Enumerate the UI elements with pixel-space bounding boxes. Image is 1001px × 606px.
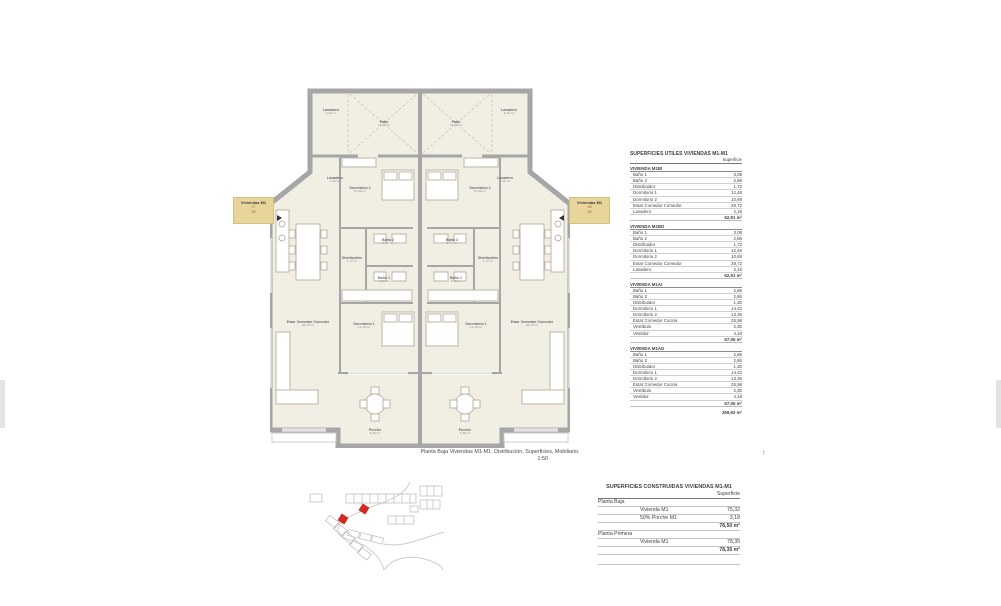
- row-label: Dormitorio 2: [633, 376, 657, 381]
- table-row: Vivienda M175,32: [598, 507, 740, 515]
- row-value: 14,22: [731, 306, 742, 311]
- row-label: Baño 2: [633, 294, 647, 299]
- row-value: 2,86: [733, 294, 742, 299]
- row-value: 2,30: [733, 324, 742, 329]
- row-label: Estar Comedor Cocina: [633, 382, 677, 387]
- row-label: Distribuidor: [633, 300, 655, 305]
- block-total-row: 62,91 m²: [630, 273, 742, 279]
- row-label: Baño 1: [633, 288, 647, 293]
- row-label: Distribuidor: [633, 242, 655, 247]
- table-row: 50% Porche M13,18: [598, 515, 740, 523]
- row-value: 2,86: [733, 352, 742, 357]
- row-label: Lavadero: [633, 267, 651, 272]
- section-total-row: 78,50 m²: [598, 523, 740, 531]
- row-value: 10,69: [731, 254, 742, 259]
- row-value: 3,18: [730, 515, 740, 522]
- row-label: Dormitorio 2: [633, 254, 657, 259]
- row-label: Vestíbulo: [633, 324, 651, 329]
- row-label: Dormitorio 1: [633, 306, 657, 311]
- section-total-row: 78,35 m²: [598, 547, 740, 555]
- section-row: Planta Primera: [598, 531, 740, 539]
- block-total: 62,91 m²: [724, 273, 742, 278]
- construidas-sections: Planta BajaVivienda M175,3250% Porche M1…: [598, 499, 740, 555]
- row-label: Dormitorio 2: [633, 312, 657, 317]
- block-total-row: 62,91 m²: [630, 215, 742, 221]
- site-location-map: [292, 482, 447, 570]
- row-label: Estar Comedor Comedor: [633, 261, 682, 266]
- site-highlight-units: [337, 503, 369, 524]
- row-label: 50% Porche M1: [598, 515, 677, 522]
- trim-mark-right: [996, 380, 1001, 428]
- row-value: 14,22: [731, 370, 742, 375]
- block-total: 67,05 m²: [724, 401, 742, 406]
- row-value: 2,86: [733, 288, 742, 293]
- row-value: 78,35: [727, 539, 740, 546]
- utiles-grand-total-row: 259,92 m²: [630, 410, 742, 415]
- row-label: Baño 2: [633, 236, 647, 241]
- row-value: 2,18: [733, 209, 742, 214]
- vivienda-block: VIVIENDA M1ADBaño 12,86Baño 22,86Distrib…: [630, 346, 742, 407]
- scale-text: 1:50: [390, 456, 610, 463]
- row-label: Baño 1: [633, 172, 647, 177]
- row-value: 2,86: [733, 236, 742, 241]
- construidas-title: SUPERFICIES CONSTRUIDAS VIVIENDAS M1-M1: [598, 483, 740, 491]
- row-label: Baño 2: [633, 178, 647, 183]
- superficies-utiles-table: SUPERFICIES UTILES VIVIENDAS M1-M1 Super…: [630, 151, 742, 415]
- unit-tag-left: Viviendas M1 17 25: [233, 197, 274, 224]
- row-value: 28,72: [731, 203, 742, 208]
- row-value: 1,30: [733, 364, 742, 369]
- superficies-construidas-table: SUPERFICIES CONSTRUIDAS VIVIENDAS M1-M1 …: [598, 483, 740, 565]
- row-value: 1,72: [733, 242, 742, 247]
- block-total: 67,05 m²: [724, 337, 742, 342]
- row-value: 25,98: [731, 318, 742, 323]
- row-label: Estar Comedor Comedor: [633, 203, 682, 208]
- vivienda-block: VIVIENDA M1BDBaño 13,08Baño 22,86Distrib…: [630, 224, 742, 279]
- row-value: 75,32: [727, 507, 740, 514]
- row-label: Vestidor: [633, 394, 649, 399]
- row-label: Dormitorio 1: [633, 190, 657, 195]
- block-total-row: 67,05 m²: [630, 337, 742, 343]
- empty-row: [598, 555, 740, 565]
- row-value: 13,35: [731, 312, 742, 317]
- unit-tag-right: Viviendas M1 18 26: [569, 197, 610, 224]
- row-value: 12,48: [731, 190, 742, 195]
- row-value: 2,18: [733, 267, 742, 272]
- row-value: 25,98: [731, 382, 742, 387]
- block-total-row: 67,05 m²: [630, 401, 742, 407]
- construidas-col-header: Superficie: [598, 491, 740, 499]
- row-value: 1,72: [733, 184, 742, 189]
- trim-mark-left: [0, 380, 5, 428]
- section-name: Planta Primera: [598, 531, 632, 538]
- row-label: Baño 1: [633, 230, 647, 235]
- row-label: Vestíbulo: [633, 388, 651, 393]
- row-label: Vivienda M1: [598, 507, 668, 514]
- site-buildings: [310, 486, 442, 560]
- row-value: 2,86: [733, 358, 742, 363]
- utiles-blocks: VIVIENDA M1BIBaño 13,08Baño 22,86Distrib…: [630, 166, 742, 407]
- row-label: Distribuidor: [633, 184, 655, 189]
- row-value: 3,08: [733, 172, 742, 177]
- stray-mark: f: [763, 451, 765, 457]
- vivienda-block: VIVIENDA M1BIBaño 13,08Baño 22,86Distrib…: [630, 166, 742, 221]
- floor-plan: Lavadero4,20 m² Patio14,52 m² Lavadero2,…: [270, 88, 570, 448]
- utiles-col-header: Superficie: [630, 157, 742, 164]
- row-value: 12,48: [731, 248, 742, 253]
- entrance-arrow-right-icon: [559, 215, 564, 221]
- row-value: 3,08: [733, 230, 742, 235]
- block-total: 62,91 m²: [724, 215, 742, 220]
- row-label: Dormitorio 2: [633, 197, 657, 202]
- row-label: Lavadero: [633, 209, 651, 214]
- floor-plan-drawing: [270, 88, 570, 448]
- row-value: 28,72: [731, 261, 742, 266]
- row-label: Distribuidor: [633, 364, 655, 369]
- drawing-sheet: Lavadero4,20 m² Patio14,52 m² Lavadero2,…: [0, 0, 1001, 606]
- row-value: 4,18: [733, 331, 742, 336]
- sheet-caption: Planta Baja Viviendas M1-M1. Distribució…: [390, 449, 610, 462]
- row-value: 2,30: [733, 388, 742, 393]
- row-label: Dormitorio 1: [633, 370, 657, 375]
- section-total: 78,50 m²: [719, 523, 740, 530]
- row-value: 10,69: [731, 197, 742, 202]
- caption-text: Planta Baja Viviendas M1-M1. Distribució…: [390, 449, 610, 456]
- row-label: Dormitorio 1: [633, 248, 657, 253]
- entrance-arrow-left-icon: [277, 215, 282, 221]
- row-label: Baño 1: [633, 352, 647, 357]
- vivienda-block: VIVIENDA M1AIBaño 12,86Baño 22,86Distrib…: [630, 282, 742, 343]
- section-total: 78,35 m²: [719, 547, 740, 554]
- row-label: Estar Comedor Cocina: [633, 318, 677, 323]
- row-value: 13,35: [731, 376, 742, 381]
- section-name: Planta Baja: [598, 499, 625, 506]
- row-label: Vivienda M1: [598, 539, 668, 546]
- section-row: Planta Baja: [598, 499, 740, 507]
- utiles-grand-total: 259,92 m²: [722, 410, 742, 415]
- row-label: Vestidor: [633, 331, 649, 336]
- table-row: Vivienda M178,35: [598, 539, 740, 547]
- row-label: Baño 2: [633, 358, 647, 363]
- row-value: 4,18: [733, 394, 742, 399]
- row-value: 2,86: [733, 178, 742, 183]
- row-value: 1,30: [733, 300, 742, 305]
